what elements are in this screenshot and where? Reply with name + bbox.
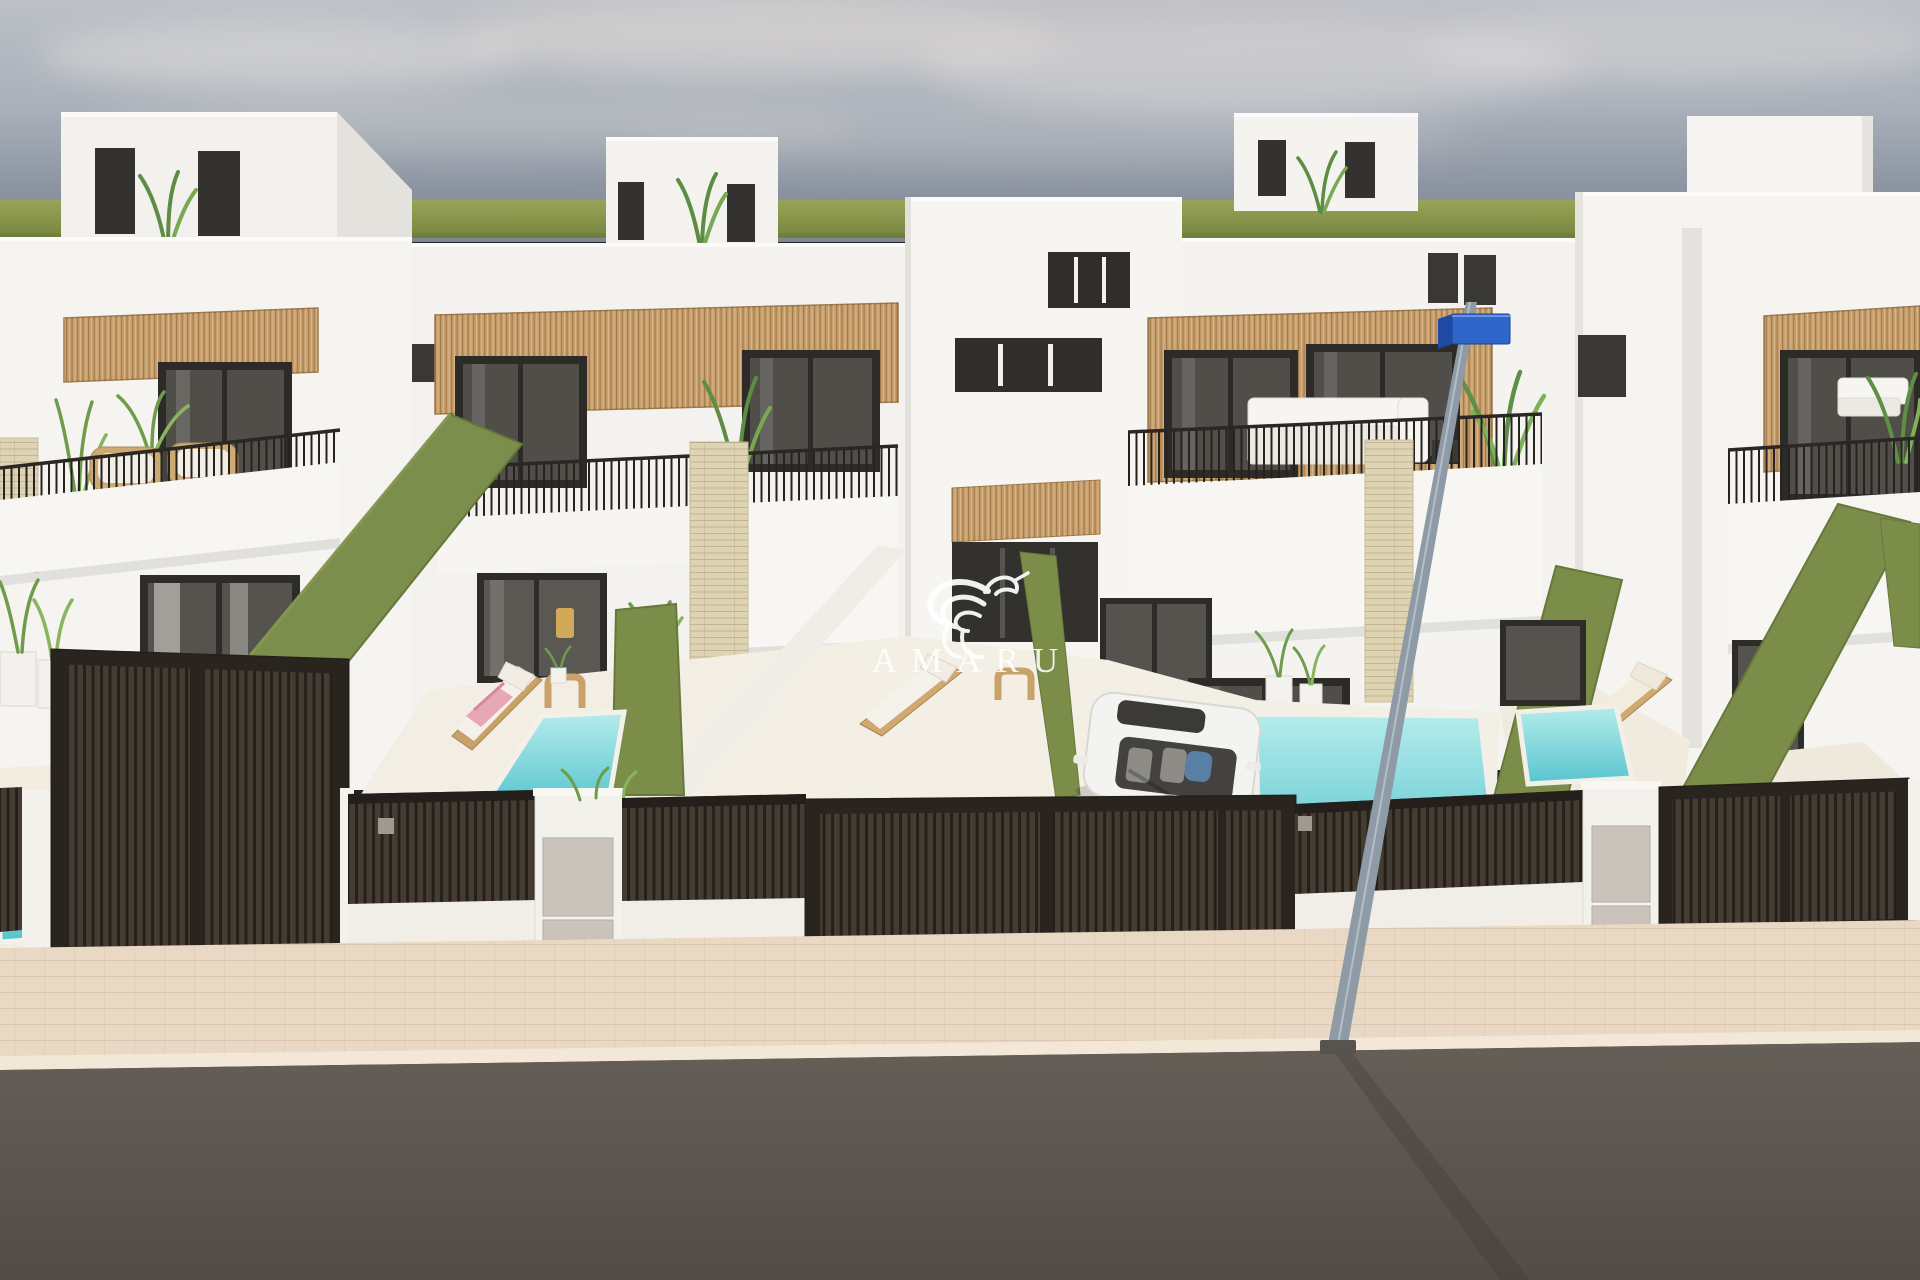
tall-section-windows [1048, 252, 1130, 308]
fence-panel [348, 790, 537, 904]
entrance-gate-1 [52, 650, 348, 948]
bulkhead-window-slit [1345, 142, 1375, 198]
roof-bulkhead-3 [1234, 113, 1418, 212]
fence-panel [622, 794, 806, 901]
bulkhead-window-slit [95, 148, 135, 234]
ground-doors [477, 573, 607, 683]
pool-4 [1518, 706, 1632, 784]
meter-panel [543, 838, 613, 916]
meter-panel [1592, 826, 1650, 902]
watermark-text: AMARU [872, 641, 1072, 680]
ground-doors [1500, 620, 1586, 706]
driveway-gate [806, 796, 1295, 948]
bulkhead-window-slit [1258, 140, 1286, 196]
render-image: AMARU [0, 0, 1920, 1280]
side-window [1578, 335, 1626, 397]
keypad [378, 818, 394, 834]
road [0, 1042, 1920, 1280]
car-driver [1184, 750, 1213, 783]
planter [0, 652, 36, 706]
bulkhead-window-slit [198, 151, 240, 236]
bulkhead-window-slit [618, 182, 644, 240]
side-window-slit [412, 344, 436, 382]
bulkhead-window-slit [727, 184, 755, 242]
passage-upper-windows [955, 338, 1102, 392]
side-window-slit [1464, 255, 1496, 305]
side-window-slit [1428, 253, 1458, 303]
keypad [1298, 816, 1312, 831]
street-sign [1438, 314, 1510, 349]
car-mirror [1073, 754, 1089, 765]
entrance-gate-3 [1660, 779, 1908, 928]
lamp-base [1320, 1040, 1356, 1054]
car-mirror [1245, 761, 1261, 772]
roof-bulkhead-2 [606, 137, 778, 246]
hedge-wall-2 [612, 604, 684, 795]
